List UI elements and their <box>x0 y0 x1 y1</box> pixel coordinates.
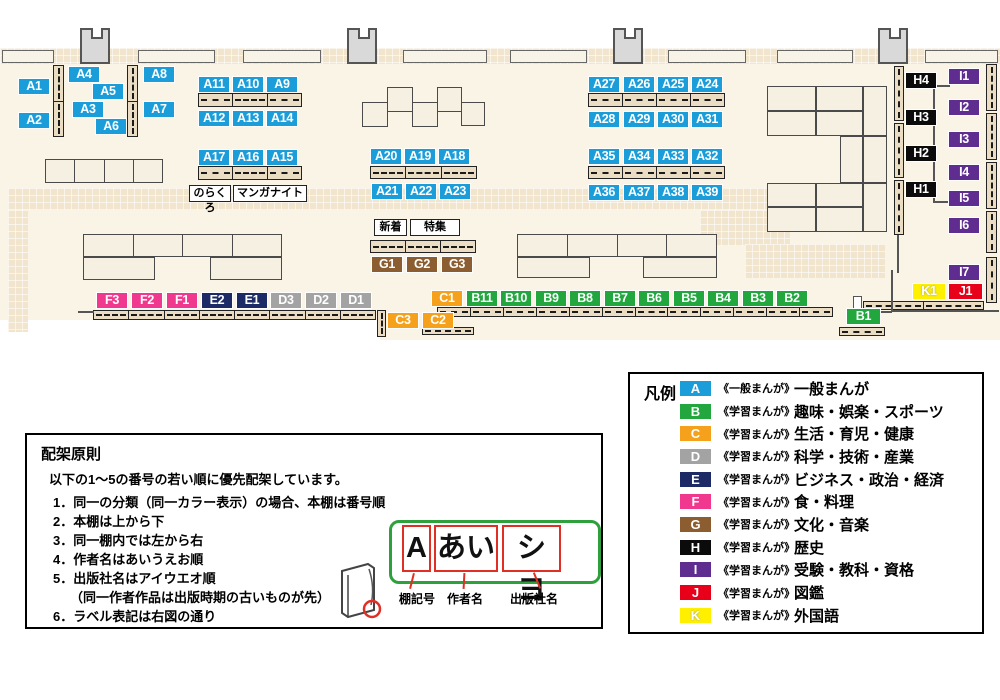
shelf-label-I1: I1 <box>948 68 980 85</box>
legend-row-E: E《学習まんが》ビジネス・政治・経済 <box>676 468 978 491</box>
principles-intro: 以下の1～5の番号の若い順に優先配架しています。 <box>49 469 348 488</box>
shelf-label-D2: D2 <box>305 292 337 309</box>
bookshelf-segment <box>406 241 441 252</box>
bookshelf-strip <box>986 162 997 209</box>
bookshelf-segment <box>54 66 63 102</box>
shelf-block <box>83 257 155 280</box>
legend-category: 文化・音楽 <box>794 514 869 535</box>
legend-row-J: J《学習まんが》図鑑 <box>676 581 978 604</box>
legend-chip-B: B <box>679 403 712 420</box>
legend-row-A: A《一般まんが》一般まんが <box>676 377 978 400</box>
shelf-label-A1: A1 <box>18 78 50 95</box>
bookshelf-segment <box>200 311 235 319</box>
bookshelf-segment <box>570 308 603 316</box>
shelf-label-A27: A27 <box>588 76 620 93</box>
shelf-label-I3: I3 <box>948 131 980 148</box>
bookshelf-segment <box>54 102 63 137</box>
bookshelf-strip <box>986 211 997 253</box>
bookshelf-segment <box>341 311 375 319</box>
shelf-block-cell <box>817 87 862 110</box>
caption-author: 作者名 <box>447 590 483 607</box>
pillar <box>613 28 643 64</box>
bookshelf-segment <box>306 311 341 319</box>
wall-shelf <box>777 50 853 63</box>
bookshelf-segment <box>603 308 636 316</box>
principles-item: 1．同一の分類（同一カラー表示）の場合、本棚は番号順 <box>53 493 385 512</box>
shelf-label-B7: B7 <box>604 290 636 307</box>
bookshelf-strip <box>198 166 302 180</box>
shelf-block-cell <box>768 184 815 206</box>
legend-type: 《学習まんが》 <box>718 607 794 623</box>
bookshelf-segment <box>406 167 441 178</box>
shelf-block <box>767 183 816 207</box>
bookshelf-segment <box>924 302 983 309</box>
label-diagram-author: あい <box>434 525 498 572</box>
wall-shelf <box>668 50 746 63</box>
shelf-label-B3: B3 <box>742 290 774 307</box>
shelf-block-cell <box>864 184 886 231</box>
shelf-label-A4: A4 <box>68 66 100 83</box>
shelf-block <box>461 102 485 126</box>
shelf-label-E1: E1 <box>236 292 268 309</box>
label-diagram-shelf-code: A <box>402 525 431 572</box>
shelf-label-A21: A21 <box>371 183 403 200</box>
shelf-block <box>816 86 863 111</box>
shelf-label-I5: I5 <box>948 190 980 207</box>
legend-type: 《学習まんが》 <box>718 516 794 532</box>
shelf-label-A9: A9 <box>266 76 298 93</box>
shelf-label-A38: A38 <box>657 184 689 201</box>
legend-type: 《学習まんが》 <box>718 403 794 419</box>
floor-map-page: A1A2A4A3A5A6A8A7A11A10A9A12A13A14A17A16A… <box>0 0 1000 700</box>
legend-chip-I: I <box>679 561 712 578</box>
shelf-block-cell <box>518 235 568 256</box>
wall-line <box>891 270 893 312</box>
pillar-notch <box>889 28 901 39</box>
shelf-block <box>863 136 887 183</box>
wall-shelf <box>403 50 487 63</box>
shelf-label-A11: A11 <box>198 76 230 93</box>
bookshelf-segment <box>623 167 657 178</box>
shelf-block <box>210 257 282 280</box>
shelf-block-cell <box>768 112 815 135</box>
legend-chip-H: H <box>679 539 712 556</box>
legend-chip-G: G <box>679 516 712 533</box>
bookshelf-segment <box>94 311 129 319</box>
caption-shelf-code: 棚記号 <box>399 590 435 607</box>
bookshelf-segment <box>129 311 164 319</box>
bookshelf-segment <box>504 308 537 316</box>
legend-row-I: I《学習まんが》受験・教科・資格 <box>676 559 978 582</box>
shelf-label-A26: A26 <box>623 76 655 93</box>
shelf-block-cell <box>644 258 716 277</box>
shelf-label-A6: A6 <box>95 118 127 135</box>
map-annotation: 特集 <box>410 219 460 236</box>
shelf-block-cell <box>667 235 716 256</box>
map-annotation: のらくろ <box>189 185 231 202</box>
shelf-label-A30: A30 <box>657 111 689 128</box>
label-diagram-connector <box>463 573 466 589</box>
bookshelf-strip <box>588 166 725 179</box>
shelf-label-A7: A7 <box>143 101 175 118</box>
shelf-label-A35: A35 <box>588 148 620 165</box>
shelf-label-C3: C3 <box>387 312 419 329</box>
shelf-label-B10: B10 <box>500 290 532 307</box>
shelf-block <box>362 102 388 127</box>
floor-map: A1A2A4A3A5A6A8A7A11A10A9A12A13A14A17A16A… <box>0 0 1000 360</box>
bookshelf-segment <box>895 124 903 177</box>
legend-chip-D: D <box>679 448 712 465</box>
bookshelf-segment <box>233 167 267 179</box>
label-diagram-publisher: シヨ <box>502 525 561 572</box>
bookshelf-strip <box>370 166 477 179</box>
shelf-block <box>767 111 816 136</box>
bookshelf-segment <box>128 102 137 137</box>
bookshelf-segment <box>840 328 884 335</box>
principles-item: 2．本棚は上から下 <box>53 512 385 531</box>
shelf-block-cell <box>438 88 461 111</box>
legend-category: ビジネス・政治・経済 <box>794 469 944 490</box>
bookshelf-strip <box>863 301 984 310</box>
shelf-block-cell <box>84 235 134 256</box>
legend-category: 受験・教科・資格 <box>794 559 914 580</box>
bookshelf-strip <box>839 327 885 336</box>
bookshelf-strip <box>986 257 997 303</box>
shelf-block <box>517 234 717 257</box>
shelf-block-cell <box>568 235 618 256</box>
shelf-label-H3: H3 <box>905 109 937 126</box>
legend-type: 《学習まんが》 <box>718 448 794 464</box>
shelf-block-cell <box>841 137 862 182</box>
shelf-block-cell <box>768 208 815 231</box>
shelf-block-cell <box>105 160 134 182</box>
shelf-label-I4: I4 <box>948 164 980 181</box>
shelf-block-cell <box>46 160 75 182</box>
bookshelf-segment <box>734 308 767 316</box>
shelf-block <box>767 86 816 111</box>
bookshelf-strip <box>127 65 138 137</box>
shelf-label-A20: A20 <box>370 148 402 165</box>
bookshelf-segment <box>371 167 406 178</box>
pillar-notch <box>624 28 636 39</box>
bookshelf-segment <box>691 94 724 106</box>
shelf-block <box>816 183 863 207</box>
bookshelf-segment <box>691 167 724 178</box>
shelf-block-cell <box>864 87 886 135</box>
walkway <box>8 210 28 332</box>
shelf-label-G3: G3 <box>441 256 473 273</box>
shelf-label-C1: C1 <box>431 290 463 307</box>
bookshelf-segment <box>589 94 623 106</box>
shelf-label-F1: F1 <box>166 292 198 309</box>
legend-chip-E: E <box>679 471 712 488</box>
bookshelf-segment <box>987 65 996 110</box>
bookshelf-strip <box>986 64 997 111</box>
shelf-label-A37: A37 <box>623 184 655 201</box>
bookshelf-segment <box>442 167 476 178</box>
wall-shelf <box>138 50 215 63</box>
legend-type: 《学習まんが》 <box>718 471 794 487</box>
shelf-label-I6: I6 <box>948 217 980 234</box>
shelf-label-H2: H2 <box>905 145 937 162</box>
shelf-block <box>437 87 462 112</box>
bookshelf-segment <box>987 163 996 208</box>
shelf-label-A18: A18 <box>438 148 470 165</box>
shelf-label-A2: A2 <box>18 112 50 129</box>
shelf-block <box>83 234 282 257</box>
legend-chip-F: F <box>679 493 712 510</box>
shelf-label-A3: A3 <box>72 101 104 118</box>
bookshelf-segment <box>128 66 137 102</box>
shelf-block-cell <box>864 137 886 182</box>
shelf-label-F2: F2 <box>131 292 163 309</box>
shelf-block <box>643 257 717 278</box>
shelf-block <box>863 86 887 136</box>
shelf-label-G2: G2 <box>406 256 438 273</box>
legend-category: 外国語 <box>794 605 839 626</box>
shelf-block-cell <box>134 160 162 182</box>
legend-type: 《学習まんが》 <box>718 562 794 578</box>
shelf-block <box>412 102 438 127</box>
shelf-block-cell <box>233 235 282 256</box>
shelf-block <box>517 257 590 278</box>
shelf-label-A15: A15 <box>266 149 298 166</box>
bookshelf-strip <box>437 307 833 317</box>
shelf-label-K1: K1 <box>912 283 946 300</box>
bookshelf-strip <box>894 66 904 121</box>
book-icon <box>334 555 384 619</box>
shelf-label-E2: E2 <box>201 292 233 309</box>
shelf-label-H4: H4 <box>905 72 937 89</box>
principles-panel: 配架原則 以下の1～5の番号の若い順に優先配架しています。 1．同一の分類（同一… <box>25 433 603 629</box>
shelf-block-cell <box>413 103 437 126</box>
principles-item: 3．同一棚内では左から右 <box>53 531 385 550</box>
legend-row-F: F《学習まんが》食・料理 <box>676 490 978 513</box>
shelf-label-A29: A29 <box>623 111 655 128</box>
shelf-label-A19: A19 <box>404 148 436 165</box>
legend-type: 《学習まんが》 <box>718 494 794 510</box>
bookshelf-segment <box>537 308 570 316</box>
legend-row-H: H《学習まんが》歴史 <box>676 536 978 559</box>
bookshelf-segment <box>589 167 623 178</box>
bookshelf-segment <box>895 67 903 120</box>
bookshelf-segment <box>233 94 267 106</box>
shelf-label-A34: A34 <box>623 148 655 165</box>
bookshelf-strip <box>986 113 997 160</box>
bookshelf-segment <box>378 311 385 336</box>
shelf-label-B9: B9 <box>535 290 567 307</box>
legend-type: 《学習まんが》 <box>718 426 794 442</box>
pillar <box>347 28 377 64</box>
wall-shelf <box>2 50 54 63</box>
shelf-block-cell <box>817 184 862 206</box>
bookshelf-segment <box>441 241 475 252</box>
shelf-block-cell <box>618 235 668 256</box>
bookshelf-segment <box>165 311 200 319</box>
legend-category: 一般まんが <box>794 378 869 399</box>
shelf-block-cell <box>183 235 233 256</box>
shelf-label-B4: B4 <box>707 290 739 307</box>
bookshelf-segment <box>636 308 669 316</box>
shelf-label-A25: A25 <box>657 76 689 93</box>
map-annotation: マンガナイト <box>233 185 307 202</box>
bookshelf-segment <box>199 167 233 179</box>
shelf-block-cell <box>817 208 862 231</box>
bookshelf-segment <box>987 258 996 302</box>
bookshelf-strip <box>370 240 476 253</box>
legend-category: 科学・技術・産業 <box>794 446 914 467</box>
shelf-block-cell <box>84 258 154 279</box>
shelf-block-cell <box>518 258 589 277</box>
shelf-block-cell <box>134 235 184 256</box>
shelf-block <box>45 159 163 183</box>
shelf-label-A32: A32 <box>691 148 723 165</box>
legend-category: 趣味・娯楽・スポーツ <box>794 401 944 422</box>
shelf-label-A5: A5 <box>92 83 124 100</box>
shelf-label-B2: B2 <box>776 290 808 307</box>
shelf-block <box>767 207 816 232</box>
shelf-block-cell <box>388 88 412 111</box>
shelf-block-cell <box>462 103 484 125</box>
bookshelf-strip <box>377 310 386 337</box>
bookshelf-segment <box>657 167 691 178</box>
walkway <box>745 244 885 278</box>
shelf-block <box>840 136 863 183</box>
wall-shelf <box>925 50 998 63</box>
shelf-label-A8: A8 <box>143 66 175 83</box>
bookshelf-strip <box>93 310 376 320</box>
bookshelf-segment <box>767 308 800 316</box>
legend-row-D: D《学習まんが》科学・技術・産業 <box>676 445 978 468</box>
legend-rows: A《一般まんが》一般まんがB《学習まんが》趣味・娯楽・スポーツC《学習まんが》生… <box>676 377 978 627</box>
shelf-label-A17: A17 <box>198 149 230 166</box>
shelf-block-cell <box>75 160 104 182</box>
legend-chip-J: J <box>679 584 712 601</box>
shelf-block <box>387 87 413 112</box>
bookshelf-segment <box>623 94 657 106</box>
shelf-label-B8: B8 <box>569 290 601 307</box>
bookshelf-strip <box>894 180 904 235</box>
shelf-block <box>863 183 887 232</box>
bookshelf-segment <box>268 94 301 106</box>
shelf-label-A12: A12 <box>198 110 230 127</box>
bookshelf-segment <box>657 94 691 106</box>
legend-category: 生活・育児・健康 <box>794 423 914 444</box>
pillar <box>80 28 110 64</box>
wall-shelf <box>510 50 587 63</box>
wall-line <box>891 310 999 312</box>
pillar-notch <box>358 28 370 39</box>
bookshelf-segment <box>668 308 701 316</box>
legend-row-G: G《学習まんが》文化・音楽 <box>676 513 978 536</box>
bookshelf-strip <box>894 123 904 178</box>
shelf-block-cell <box>363 103 387 126</box>
shelf-label-A13: A13 <box>232 110 264 127</box>
shelf-block-cell <box>211 258 281 279</box>
legend-row-K: K《学習まんが》外国語 <box>676 604 978 627</box>
bookshelf-strip <box>53 65 64 137</box>
shelf-label-D1: D1 <box>340 292 372 309</box>
shelf-label-A23: A23 <box>439 183 471 200</box>
bookshelf-segment <box>895 181 903 234</box>
shelf-block-cell <box>817 112 862 135</box>
legend-panel: 凡例 A《一般まんが》一般まんがB《学習まんが》趣味・娯楽・スポーツC《学習まん… <box>628 372 984 634</box>
bookshelf-segment <box>199 94 233 106</box>
pillar-notch <box>91 28 103 39</box>
legend-chip-A: A <box>679 380 712 397</box>
legend-category: 食・料理 <box>794 491 854 512</box>
legend-row-C: C《学習まんが》生活・育児・健康 <box>676 422 978 445</box>
shelf-label-A28: A28 <box>588 111 620 128</box>
shelf-label-I2: I2 <box>948 99 980 116</box>
shelf-label-A39: A39 <box>691 184 723 201</box>
shelf-label-B5: B5 <box>673 290 705 307</box>
shelf-label-A33: A33 <box>657 148 689 165</box>
bookshelf-segment <box>270 311 305 319</box>
shelf-label-A22: A22 <box>405 183 437 200</box>
bookshelf-strip <box>588 93 725 107</box>
legend-type: 《一般まんが》 <box>718 380 794 396</box>
legend-chip-C: C <box>679 425 712 442</box>
legend-category: 歴史 <box>794 537 824 558</box>
shelf-label-D3: D3 <box>270 292 302 309</box>
wall-shelf <box>243 50 321 63</box>
shelf-label-B11: B11 <box>466 290 498 307</box>
shelf-block <box>816 207 863 232</box>
shelf-label-I7: I7 <box>948 264 980 281</box>
pillar <box>878 28 908 64</box>
shelf-label-A16: A16 <box>232 149 264 166</box>
bookshelf-segment <box>371 241 406 252</box>
bookshelf-strip <box>198 93 302 107</box>
shelf-label-B6: B6 <box>638 290 670 307</box>
shelf-label-A36: A36 <box>588 184 620 201</box>
shelf-label-F3: F3 <box>96 292 128 309</box>
bookshelf-segment <box>471 308 504 316</box>
legend-title: 凡例 <box>644 380 676 404</box>
shelf-label-J1: J1 <box>948 283 983 300</box>
shelf-block <box>816 111 863 136</box>
wall-line <box>897 235 899 273</box>
shelf-label-G1: G1 <box>371 256 403 273</box>
legend-chip-K: K <box>679 607 712 624</box>
shelf-label-A10: A10 <box>232 76 264 93</box>
shelf-label-B1: B1 <box>846 308 881 325</box>
shelf-label-A24: A24 <box>691 76 723 93</box>
map-annotation: 新着 <box>374 219 407 236</box>
principles-title: 配架原則 <box>41 443 101 464</box>
shelf-label-A31: A31 <box>691 111 723 128</box>
caption-publisher: 出版社名 <box>510 590 558 607</box>
bookshelf-segment <box>701 308 734 316</box>
legend-type: 《学習まんが》 <box>718 539 794 555</box>
bookshelf-segment <box>235 311 270 319</box>
bookshelf-segment <box>987 212 996 252</box>
shelf-label-C2: C2 <box>422 312 454 329</box>
bookshelf-segment <box>987 114 996 159</box>
legend-row-B: B《学習まんが》趣味・娯楽・スポーツ <box>676 400 978 423</box>
bookshelf-segment <box>268 167 301 179</box>
bookshelf-segment <box>800 308 832 316</box>
shelf-label-H1: H1 <box>905 181 937 198</box>
wall-line <box>78 311 94 313</box>
legend-category: 図鑑 <box>794 582 824 603</box>
shelf-block-cell <box>768 87 815 110</box>
legend-type: 《学習まんが》 <box>718 585 794 601</box>
shelf-label-A14: A14 <box>266 110 298 127</box>
